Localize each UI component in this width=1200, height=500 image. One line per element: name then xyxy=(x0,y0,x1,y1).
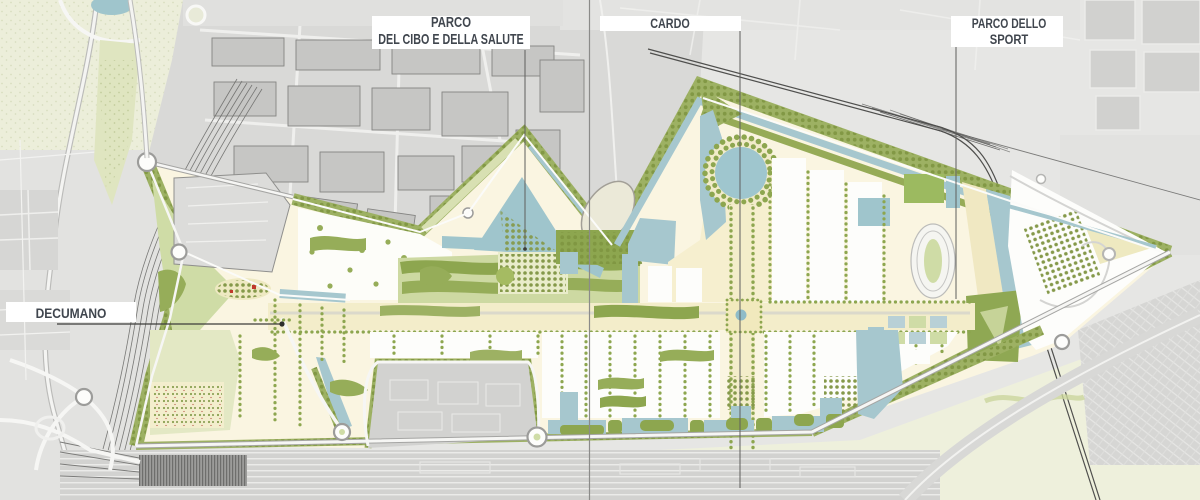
svg-text:DEL CIBO E DELLA SALUTE: DEL CIBO E DELLA SALUTE xyxy=(378,30,523,47)
svg-text:SPORT: SPORT xyxy=(990,32,1029,47)
svg-text:DECUMANO: DECUMANO xyxy=(36,305,107,321)
svg-text:PARCO: PARCO xyxy=(431,14,471,31)
svg-text:CARDO: CARDO xyxy=(650,16,690,31)
svg-text:PARCO DELLO: PARCO DELLO xyxy=(972,15,1047,31)
